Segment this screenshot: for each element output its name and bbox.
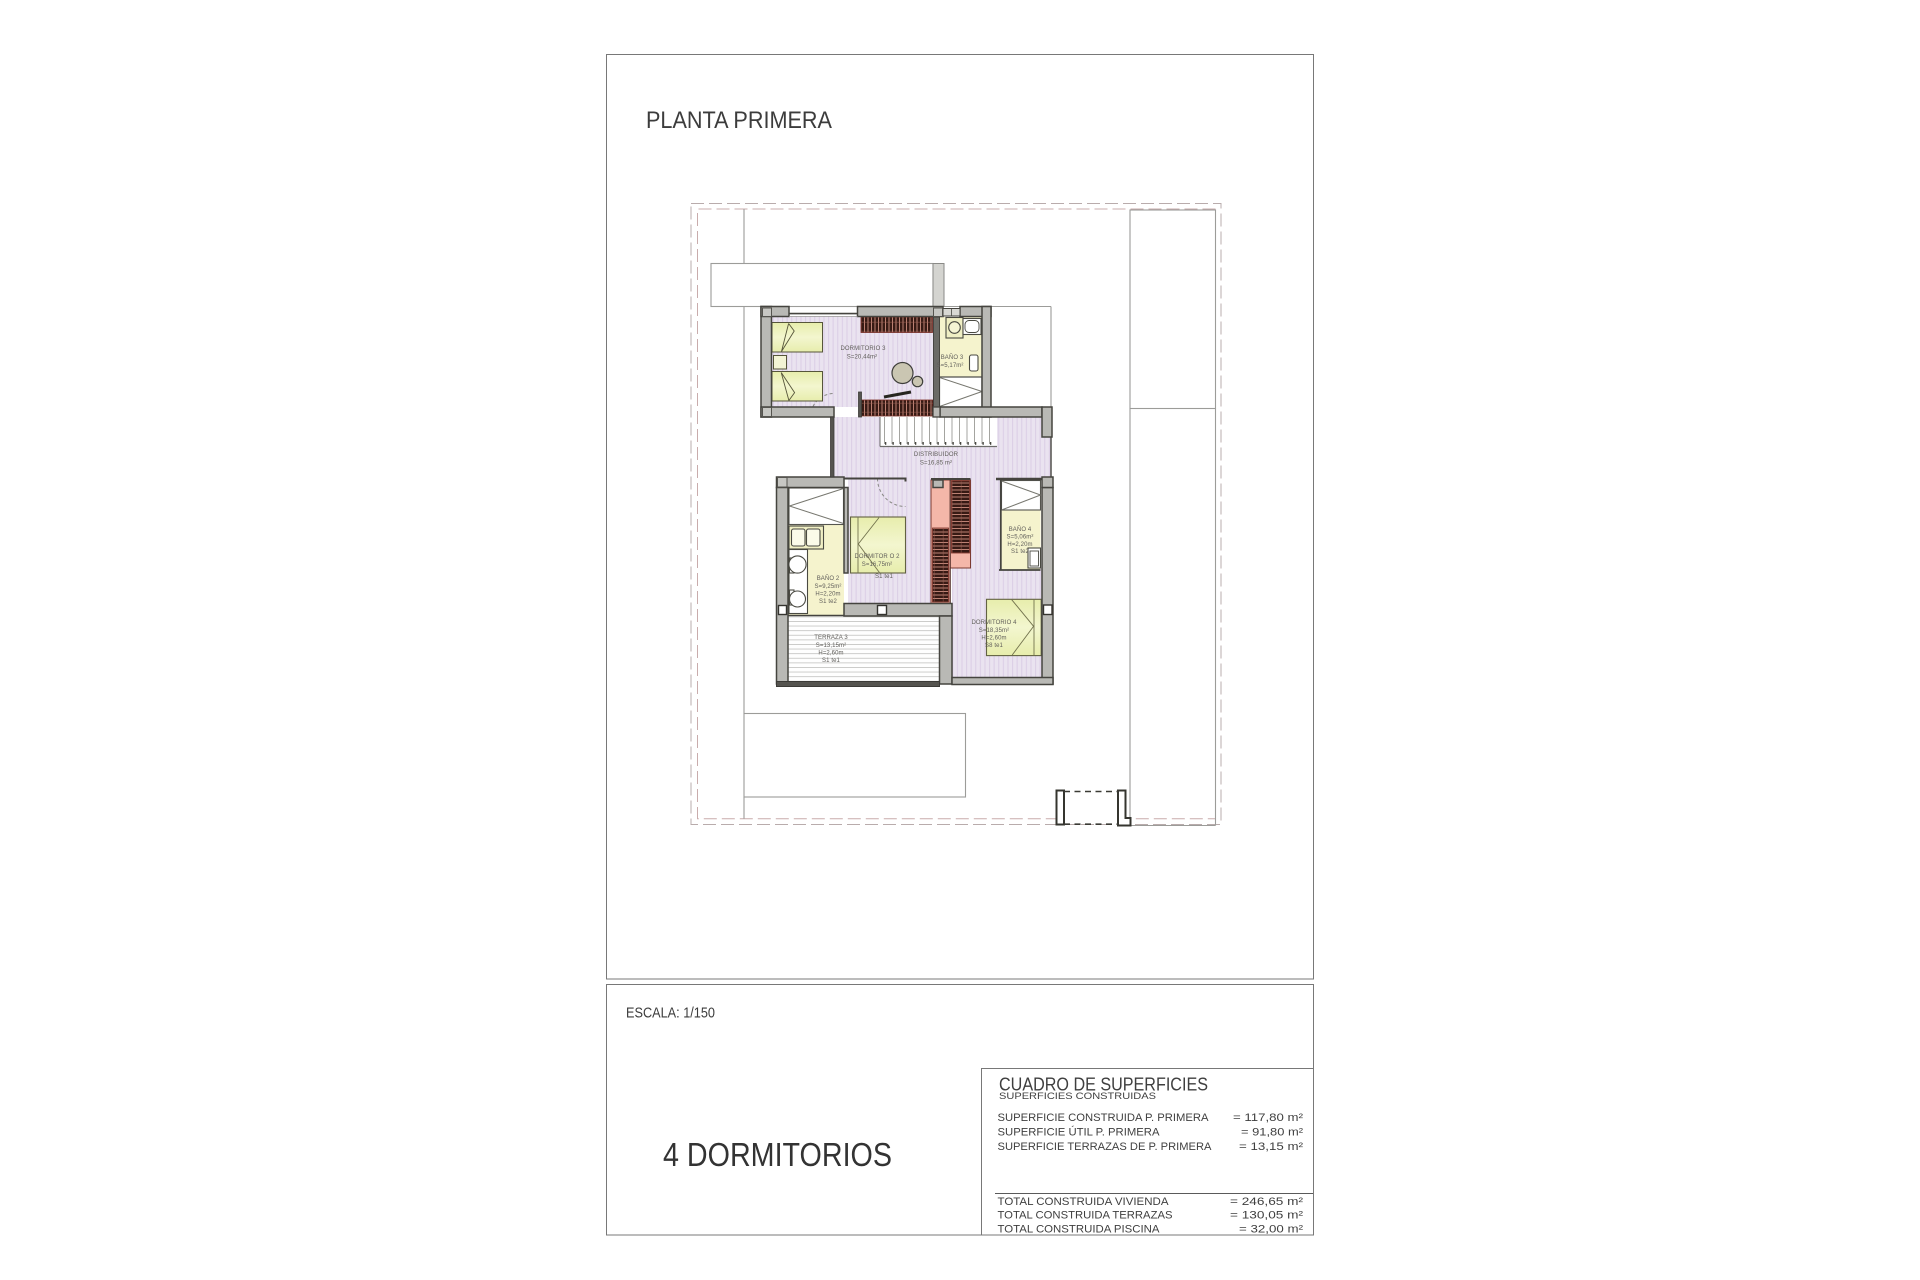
svg-text:SUPERFICIE ÚTIL P. PRIMERA: SUPERFICIE ÚTIL P. PRIMERA	[998, 1126, 1161, 1139]
svg-text:= 130,05 m²: = 130,05 m²	[1230, 1210, 1303, 1222]
svg-text:SUPERFICIE CONSTRUIDA P. PRIME: SUPERFICIE CONSTRUIDA P. PRIMERA	[998, 1112, 1210, 1124]
svg-text:S=16,85 m²: S=16,85 m²	[920, 461, 952, 467]
svg-text:S=20,44m²: S=20,44m²	[847, 355, 877, 361]
svg-text:TOTAL CONSTRUIDA PISCINA: TOTAL CONSTRUIDA PISCINA	[998, 1224, 1161, 1236]
svg-text:TOTAL CONSTRUIDA TERRAZAS: TOTAL CONSTRUIDA TERRAZAS	[998, 1210, 1173, 1222]
svg-text:S=18,35m²: S=18,35m²	[979, 628, 1009, 634]
svg-text:DORMITORIO 4: DORMITORIO 4	[971, 620, 1017, 626]
svg-text:BAÑO 3: BAÑO 3	[941, 354, 964, 361]
svg-text:DORMITOR O 2: DORMITOR O 2	[854, 554, 900, 560]
svg-text:SUPERFICIE TERRAZAS DE P. PRIM: SUPERFICIE TERRAZAS DE P. PRIMERA	[998, 1141, 1213, 1153]
svg-text:S=13,15m²: S=13,15m²	[816, 643, 846, 649]
svg-text:S8 te1: S8 te1	[985, 643, 1004, 649]
svg-text:BAÑO 4: BAÑO 4	[1009, 526, 1032, 533]
svg-text:S=16,75m²: S=16,75m²	[862, 562, 892, 568]
svg-text:H=2,20m: H=2,20m	[1007, 542, 1032, 548]
svg-text:4 DORMITORIOS: 4 DORMITORIOS	[663, 1136, 892, 1173]
svg-text:H=2,60m: H=2,60m	[818, 651, 843, 657]
svg-text:H=2,20m: H=2,20m	[815, 592, 840, 598]
svg-text:ESCALA: 1/150: ESCALA: 1/150	[626, 1006, 715, 1022]
svg-text:S=5,06m²: S=5,06m²	[1007, 535, 1034, 541]
svg-text:S1 te1: S1 te1	[875, 574, 894, 580]
svg-text:S=9,25m²: S=9,25m²	[815, 584, 842, 590]
svg-text:S=5,17m²: S=5,17m²	[937, 363, 964, 369]
svg-text:PLANTA PRIMERA: PLANTA PRIMERA	[646, 107, 832, 134]
svg-text:TOTAL CONSTRUIDA VIVIENDA: TOTAL CONSTRUIDA VIVIENDA	[998, 1196, 1170, 1208]
svg-text:BAÑO 2: BAÑO 2	[817, 575, 840, 582]
svg-text:SUPERFICIES CONSTRUIDAS: SUPERFICIES CONSTRUIDAS	[999, 1091, 1156, 1102]
svg-text:DORMITORIO 3: DORMITORIO 3	[840, 346, 886, 352]
svg-text:S1 te2: S1 te2	[819, 599, 838, 605]
svg-text:TERRAZA 3: TERRAZA 3	[814, 635, 848, 641]
svg-text:DISTRIBUIDOR: DISTRIBUIDOR	[914, 452, 959, 458]
svg-text:S1 te2: S1 te2	[1011, 549, 1030, 555]
svg-text:= 117,80 m²: = 117,80 m²	[1233, 1112, 1303, 1124]
svg-text:= 246,65 m²: = 246,65 m²	[1230, 1196, 1303, 1208]
svg-text:S1 te1: S1 te1	[822, 658, 841, 664]
svg-text:= 13,15 m²: = 13,15 m²	[1239, 1141, 1303, 1153]
svg-text:H=2,60m: H=2,60m	[981, 636, 1006, 642]
svg-text:= 91,80 m²: = 91,80 m²	[1241, 1127, 1303, 1139]
svg-text:= 32,00 m²: = 32,00 m²	[1239, 1224, 1303, 1236]
